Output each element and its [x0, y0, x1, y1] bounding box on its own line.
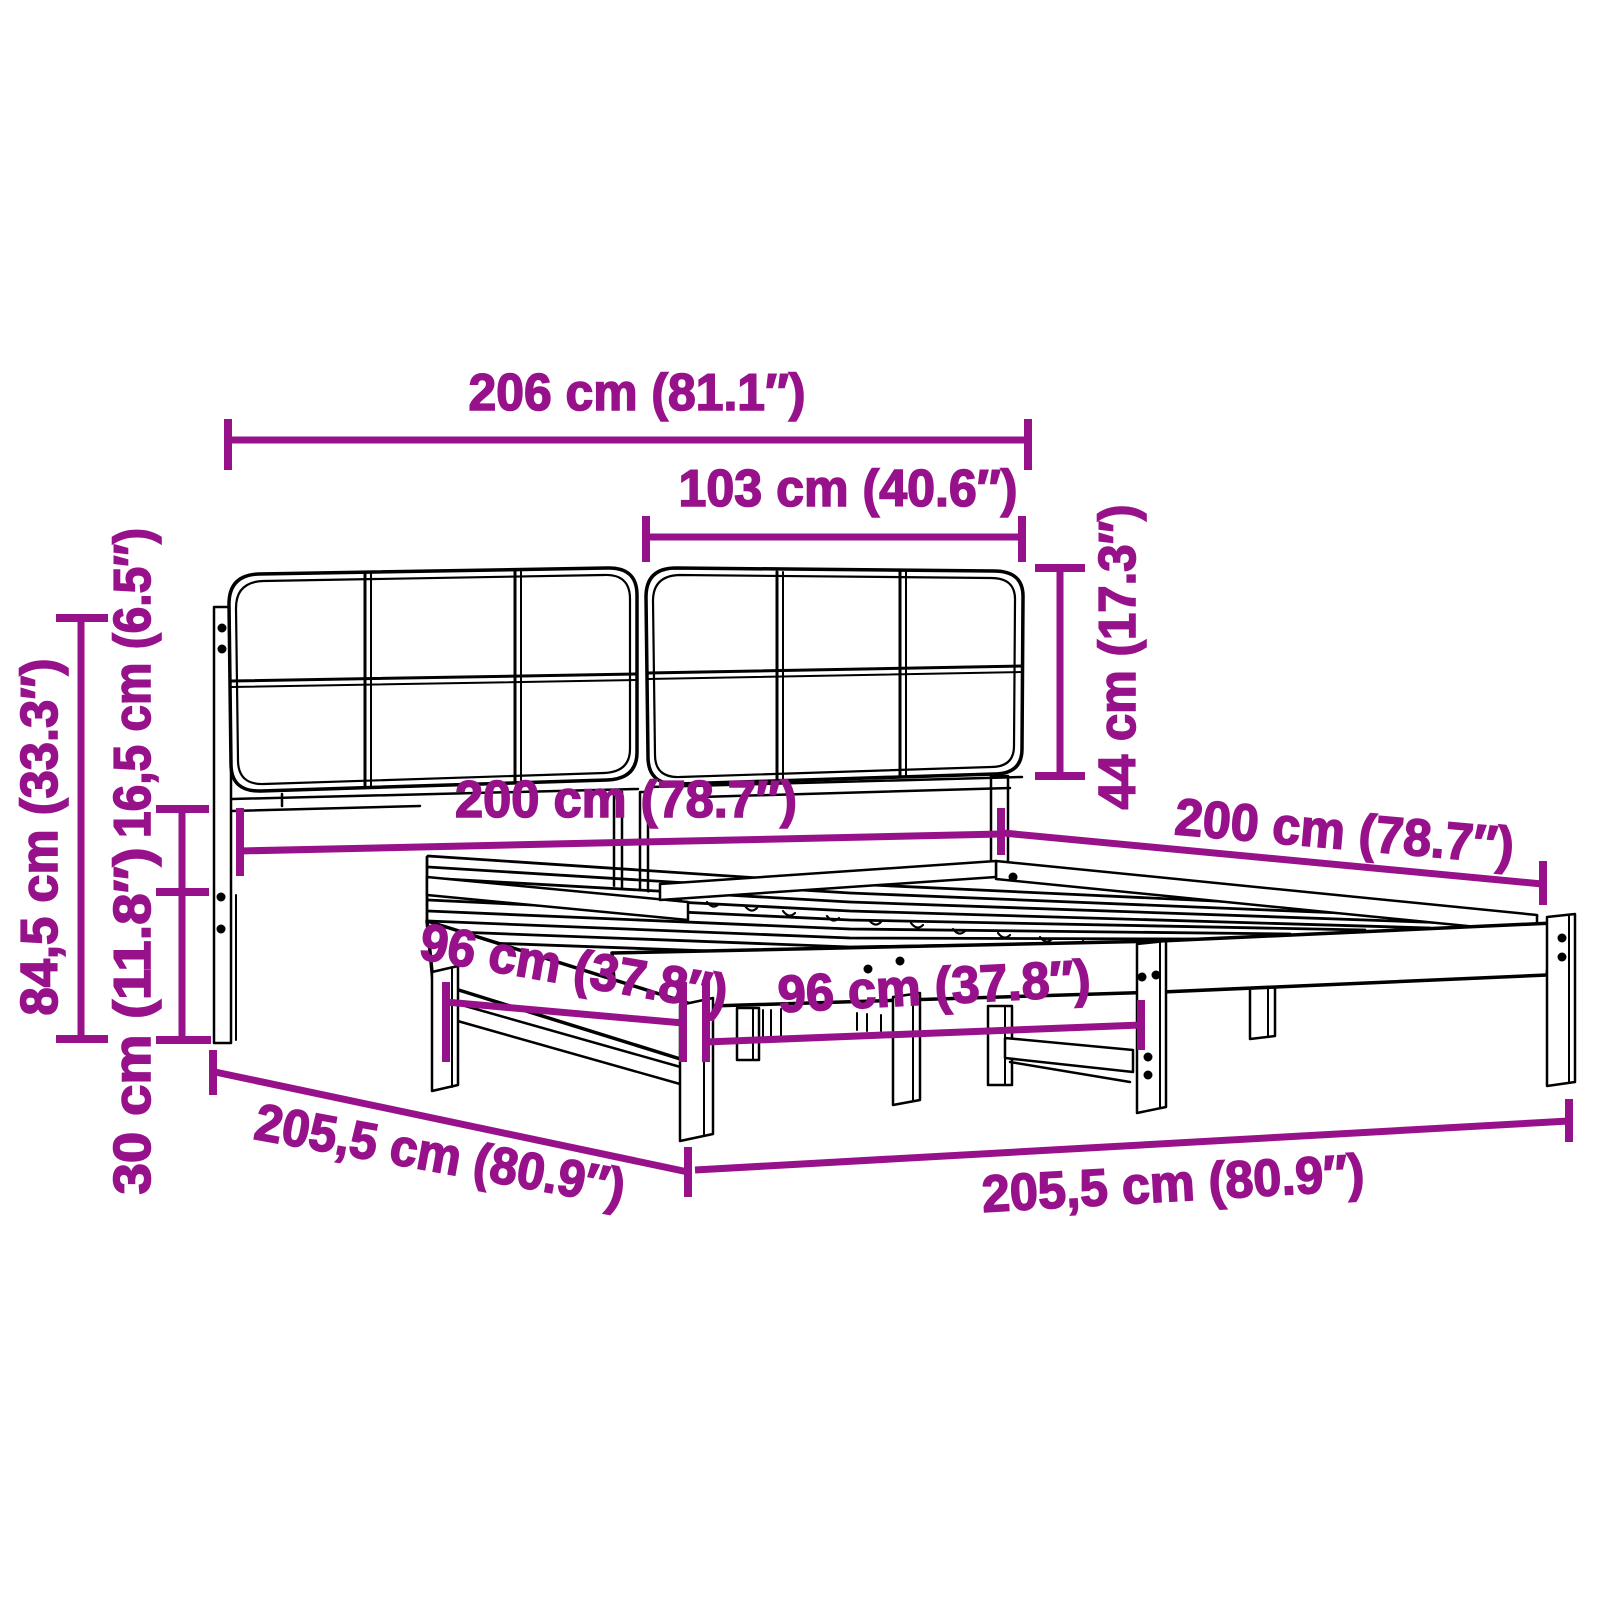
svg-text:16,5 cm (6.5″): 16,5 cm (6.5″) [104, 528, 162, 838]
svg-text:84,5 cm (33.3″): 84,5 cm (33.3″) [11, 659, 69, 1016]
svg-text:200 cm (78.7″): 200 cm (78.7″) [455, 771, 797, 829]
svg-text:103 cm (40.6″): 103 cm (40.6″) [679, 460, 1018, 518]
svg-text:206 cm (81.1″): 206 cm (81.1″) [469, 364, 806, 422]
svg-text:44 cm (17.3″): 44 cm (17.3″) [1089, 505, 1147, 810]
svg-text:30 cm (11.8″): 30 cm (11.8″) [104, 848, 162, 1195]
